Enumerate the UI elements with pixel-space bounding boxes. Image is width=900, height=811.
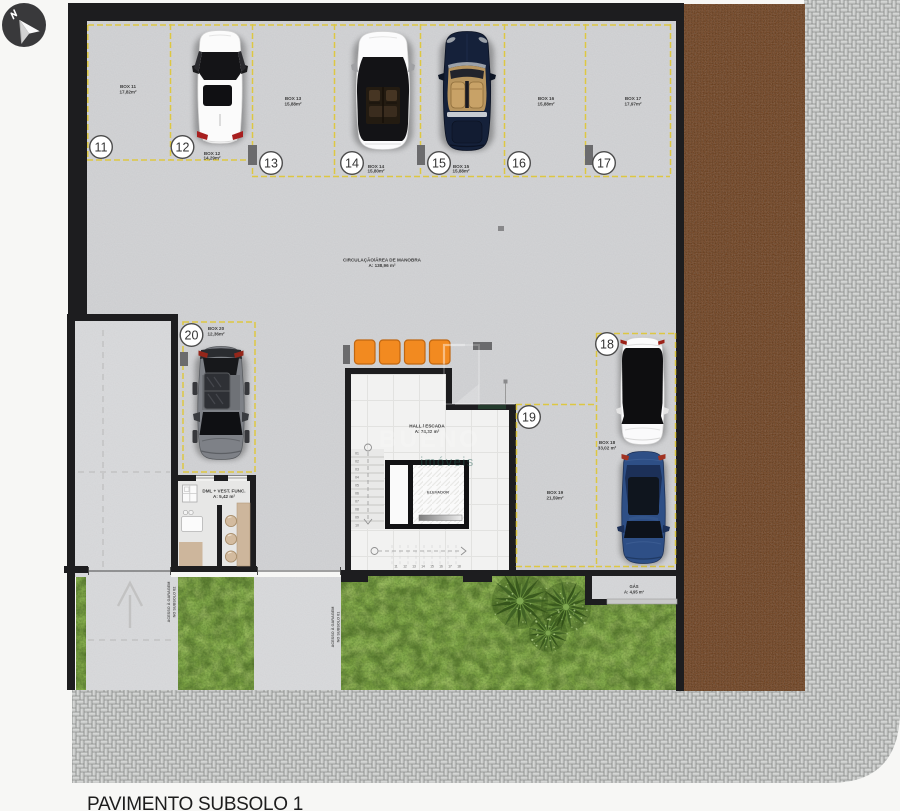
svg-text:15,88m²: 15,88m² xyxy=(452,169,470,174)
svg-text:13: 13 xyxy=(412,565,416,569)
svg-text:01: 01 xyxy=(355,451,359,455)
svg-text:12: 12 xyxy=(176,140,190,154)
svg-text:ACESSO À GARAGEM: ACESSO À GARAGEM xyxy=(166,582,171,623)
svg-text:BOX 19: BOX 19 xyxy=(547,490,564,495)
svg-text:06: 06 xyxy=(355,491,359,495)
svg-text:04: 04 xyxy=(355,475,359,479)
svg-text:16: 16 xyxy=(439,565,443,569)
svg-text:08: 08 xyxy=(355,507,359,511)
svg-text:02: 02 xyxy=(355,459,359,463)
svg-text:33,02 m²: 33,02 m² xyxy=(598,446,617,451)
svg-text:10: 10 xyxy=(355,523,359,527)
svg-text:BOX 17: BOX 17 xyxy=(625,96,642,101)
svg-text:18: 18 xyxy=(457,565,461,569)
svg-text:11: 11 xyxy=(95,140,108,154)
svg-text:BOX 11: BOX 11 xyxy=(120,84,137,89)
svg-text:15: 15 xyxy=(432,156,446,170)
svg-text:15,88m²: 15,88m² xyxy=(537,102,555,107)
svg-text:DML + VEST. FUNC.: DML + VEST. FUNC. xyxy=(202,489,245,494)
svg-text:18: 18 xyxy=(600,337,614,351)
svg-text:BOX 16: BOX 16 xyxy=(538,96,555,101)
svg-text:15: 15 xyxy=(430,565,434,569)
svg-text:BOX 13: BOX 13 xyxy=(285,96,302,101)
svg-text:07: 07 xyxy=(355,499,359,503)
svg-text:14,29m²: 14,29m² xyxy=(203,156,221,161)
svg-text:17: 17 xyxy=(448,565,452,569)
svg-text:BUENO: BUENO xyxy=(379,426,481,453)
svg-text:NO SUBSOLO 01: NO SUBSOLO 01 xyxy=(337,612,341,643)
svg-text:A: 5,42 m²: A: 5,42 m² xyxy=(213,494,235,499)
svg-text:ELEVADOR: ELEVADOR xyxy=(427,490,449,495)
svg-text:BOX 18: BOX 18 xyxy=(599,440,616,445)
svg-text:14: 14 xyxy=(345,156,359,170)
svg-text:14: 14 xyxy=(421,565,425,569)
svg-text:03: 03 xyxy=(355,467,359,471)
svg-text:ACESSO À GARAGEM: ACESSO À GARAGEM xyxy=(330,607,335,648)
svg-text:15,88m²: 15,88m² xyxy=(284,102,302,107)
svg-text:15,80m²: 15,80m² xyxy=(367,169,385,174)
svg-text:20: 20 xyxy=(185,328,199,342)
svg-text:BOX 20: BOX 20 xyxy=(208,326,225,331)
svg-text:21,59m²: 21,59m² xyxy=(546,496,564,501)
svg-text:13: 13 xyxy=(264,156,278,170)
svg-text:16: 16 xyxy=(512,156,526,170)
svg-text:17,97m²: 17,97m² xyxy=(624,102,642,107)
svg-text:19: 19 xyxy=(522,410,536,424)
svg-text:05: 05 xyxy=(355,483,359,487)
svg-text:CIRCULAÇÃO/ÁREA DE MANOBRA: CIRCULAÇÃO/ÁREA DE MANOBRA xyxy=(343,257,422,263)
svg-text:09: 09 xyxy=(355,515,359,519)
svg-text:A: 138,96 m²: A: 138,96 m² xyxy=(368,263,396,268)
svg-text:17,82m²: 17,82m² xyxy=(119,90,137,95)
svg-text:A: 4,95 m²: A: 4,95 m² xyxy=(624,590,645,595)
svg-text:11: 11 xyxy=(394,565,398,569)
svg-text:PAVIMENTO SUBSOLO 1: PAVIMENTO SUBSOLO 1 xyxy=(87,794,303,811)
svg-text:GÁS: GÁS xyxy=(629,584,638,589)
svg-text:NO SUBSOLO 02: NO SUBSOLO 02 xyxy=(173,587,177,618)
svg-text:12,36m²: 12,36m² xyxy=(207,332,225,337)
svg-text:imóveis: imóveis xyxy=(420,454,475,469)
svg-text:17: 17 xyxy=(597,156,611,170)
svg-text:12: 12 xyxy=(403,565,407,569)
